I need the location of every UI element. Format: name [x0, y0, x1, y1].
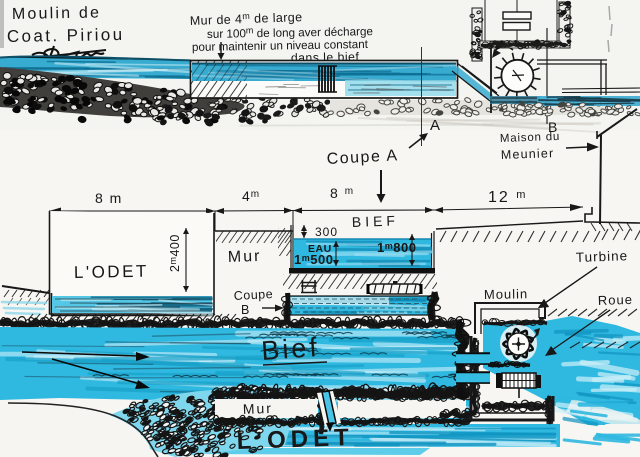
svg-text:L'ODET: L'ODET: [74, 262, 149, 282]
svg-text:Coat. Piriou: Coat. Piriou: [7, 25, 125, 46]
svg-text:Meunier: Meunier: [501, 146, 555, 162]
svg-text:8 m: 8 m: [95, 190, 123, 206]
svg-text:Roue: Roue: [598, 292, 634, 308]
svg-text:Coupe: Coupe: [233, 287, 273, 303]
svg-text:2m400: 2m400: [168, 234, 182, 272]
svg-text:Maison du: Maison du: [500, 131, 561, 145]
svg-text:Bief: Bief: [260, 332, 320, 366]
svg-text:1m500: 1m500: [294, 252, 333, 267]
svg-text:Turbine: Turbine: [576, 248, 629, 265]
svg-text:Moulin: Moulin: [484, 286, 529, 302]
svg-text:Mur: Mur: [228, 248, 262, 266]
svg-text:1m800: 1m800: [377, 240, 416, 255]
svg-text:L'ODET: L'ODET: [236, 424, 354, 455]
svg-text:Mur: Mur: [243, 400, 274, 417]
svg-text:BIEF: BIEF: [352, 212, 400, 230]
svg-text:A: A: [430, 117, 441, 134]
svg-text:300: 300: [315, 225, 338, 239]
svg-text:Moulin de: Moulin de: [12, 4, 101, 23]
svg-text:B: B: [241, 303, 250, 317]
